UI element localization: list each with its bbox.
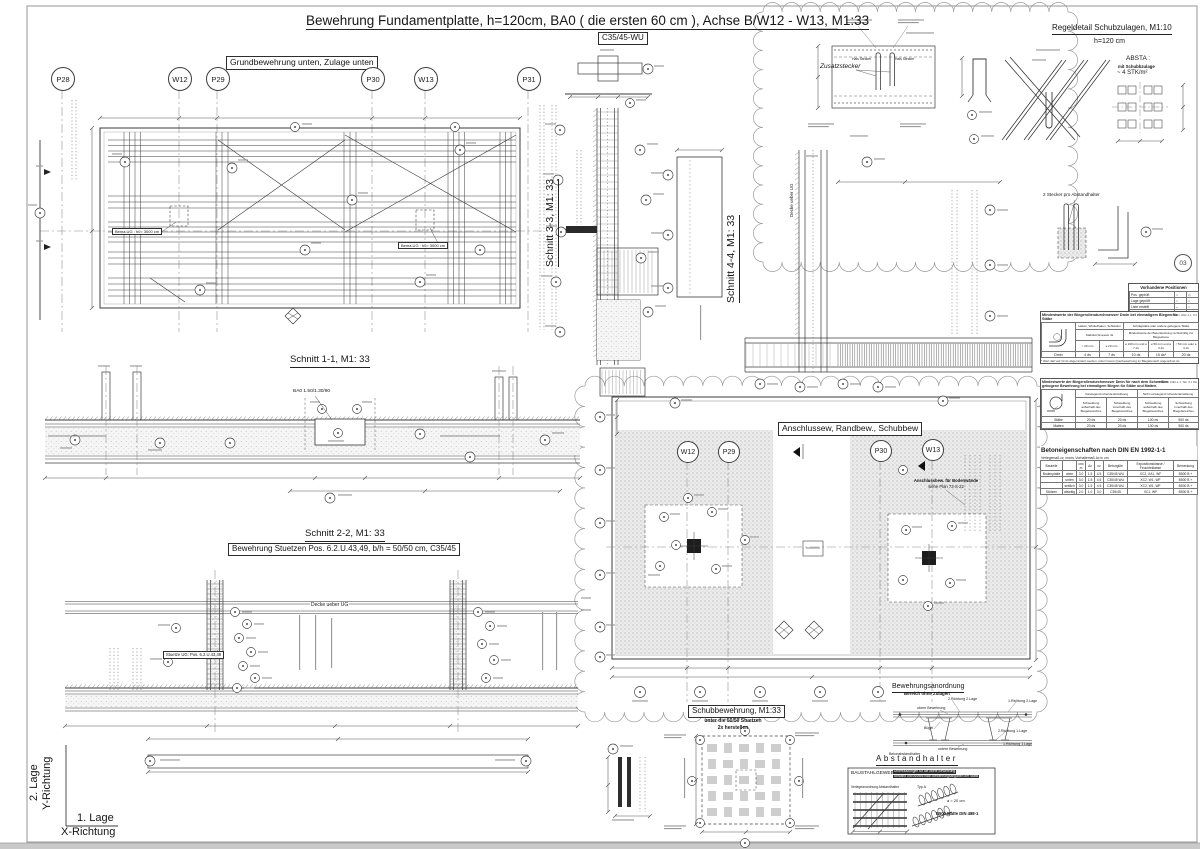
absta-title: ABSTA : [1126, 55, 1150, 62]
schnitt11-title: Schnitt 1-1, M1: 33 [290, 355, 370, 368]
regeldetail-subtitle: h=120 cm [1094, 38, 1125, 46]
grid-bubble-p29: P29 [206, 67, 230, 91]
grid-bubble-w13-2: W13 [922, 439, 944, 461]
absta-line3: ~ 4 STK/m² [1117, 70, 1148, 77]
table-betoneigenschaften: Betoneigenschaften nach DIN EN 1992-1-1 … [1040, 446, 1197, 495]
axis-lage1: 1. Lage [77, 812, 114, 824]
table-row: Matten20 ds20 ds100 ds500 ds [1042, 423, 1199, 429]
schnitt22-subtitle: Bewehrung Stuetzen Pos. 6.2.U.43,49, b/h… [228, 543, 460, 556]
anordnung-subtitle: Bereich ohne Zulagen [904, 692, 950, 697]
dmin2-norm: DIN EN 1992-1-1, Tab. 8.1 DE [1159, 380, 1197, 384]
grid-bubble-p30: P30 [361, 67, 385, 91]
baustahl-mass-note: a = 20 cm [947, 799, 965, 803]
zone-mark: 03 [1174, 254, 1192, 272]
schnitt44-title: Schnitt 4-4, M1: 33 [726, 215, 740, 303]
ba0-note: BA0 1.50/1.30/90 [293, 389, 330, 394]
table-dmin1: DIN EN 1992-1-1, 8.3 Mindestwerte der Bi… [1040, 311, 1199, 364]
hals-stecker-label-2: Hals Stecker [895, 58, 914, 62]
anschluss-header: Anschlussew, Randbew., Schubbew [778, 422, 922, 436]
baustahl-note2: Abstand und Anzahl nach Bewehrungsangabe… [893, 775, 979, 779]
schub-sub2: 2x herstellen [695, 726, 771, 732]
drawing-linework [0, 0, 1200, 849]
dmin2-head-right: Nicht vorwiegend ruhende Einwirkung [1138, 390, 1199, 398]
grid-bubble-w13: W13 [414, 67, 438, 91]
dmin1-norm: DIN EN 1992-1-1, 8.3 [1170, 313, 1197, 317]
baustahl-title: BAUSTAHLGEWEBE [851, 771, 897, 776]
dmin2-head-left: Vorwiegend ruhende Einwirkung [1076, 390, 1138, 398]
plan-unten-header: Grundbewehrung unten, Zulage unten [226, 56, 378, 70]
dmin1-head-left: Haken, Winkelhaken, Schlaufen [1076, 323, 1124, 330]
decke-ueber-ug-label-2: Decke ueber UG [789, 183, 794, 217]
schnitt33-title: Schnitt 3-3, M1: 33 [545, 179, 559, 267]
baustahl-verlege-note: Verlegeanordnung Abstandhalter [851, 786, 899, 790]
abstandhalter-title: Abstandhalter [876, 755, 958, 766]
dmin2-icon-cell [1042, 390, 1076, 417]
anordnung-label-5: untere Bewehrung [938, 747, 967, 751]
baustahl-din-note: B500 Matte DIN 488-1 [936, 812, 978, 817]
anordnung-label-3: Bügel [924, 726, 933, 730]
dmin1-sub-right: Mindestwerte der Betondeckung rechtwinkl… [1124, 329, 1199, 340]
table-row: Haken, Winkelhaken, Schlaufen Schrägstäb… [1042, 323, 1199, 330]
hals-stecker-label-1: Hals Stecker [852, 58, 871, 62]
schub-title: Schubbewehrung, M1:33 [688, 705, 785, 718]
zusatzstecker-label: Zusatzstecker [820, 63, 860, 70]
schnitt22-title: Schnitt 2-2, M1: 33 [305, 529, 385, 542]
table-header-row: BauteilecnomΔccvBetongüteExpositionsklas… [1041, 461, 1198, 471]
wand-note-line2: siehe Plan 73-S-22 [910, 485, 982, 490]
regeldetail-title: Regeldetail Schubzulagen, M1:10 [1052, 24, 1172, 35]
anordnung-label-2: obere Bewehrung [917, 706, 945, 710]
pit-note-2: Bema.UG : h0= 3000 cm [398, 242, 448, 249]
beton-grid: BauteilecnomΔccvBetongüteExpositionsklas… [1040, 460, 1198, 495]
bend-diagram-icon [1044, 324, 1074, 350]
dmin1-sub-left: Stabdurchmesser ds [1076, 329, 1124, 340]
weld-bend-diagram-icon [1044, 391, 1074, 415]
dmin1-head-right: Schrägstäbe oder andere gebogene Stäbe [1124, 323, 1199, 330]
grid-bubble-w12: W12 [168, 67, 192, 91]
grid-bubble-w12-2: W12 [677, 441, 699, 463]
decke-ueber-ug-label: Decke ueber UG [310, 603, 349, 609]
schub-sub1: unter die 50/50 Stuetzen [695, 719, 771, 725]
anordnung-label-4: 2.Richtung 1.Lage [998, 729, 1027, 733]
grid-bubble-p29-2: P29 [718, 441, 740, 463]
table-dmin2: DIN EN 1992-1-1, Tab. 8.1 DE Mindestwert… [1040, 378, 1199, 430]
dmin1-title: Mindestwerte der Biegerollendurchmesser … [1041, 312, 1183, 322]
drawing-sheet: Bewehrung Fundamentplatte, h=120cm, BA0 … [0, 0, 1200, 849]
wand-note-line1: Anschlussbew. für Bodenwände [910, 479, 982, 484]
pit-note-1: Bema.UG : h0= 3000 cm [112, 228, 162, 235]
stecker-note: 2 Stecker pro Abstandhalter [1043, 192, 1100, 197]
grid-bubble-p31: P31 [517, 67, 541, 91]
beton-title: Betoneigenschaften nach DIN EN 1992-1-1 [1040, 446, 1197, 455]
positionen-title: Vorhandene Positionen [1129, 284, 1198, 291]
table-row: Dmin4 ds7 ds10 ds15 ds*20 ds [1042, 352, 1199, 358]
table-row: Vorwiegend ruhende Einwirkung Nicht vorw… [1042, 390, 1199, 398]
anordnung-label-1: 1.Richtung 2.Lage [1008, 699, 1037, 703]
page-title: Bewehrung Fundamentplatte, h=120cm, BA0 … [306, 13, 869, 30]
stuetze-ug-label: Stuetze UG: Pos. 6.2.U.43,49 [163, 651, 224, 659]
dmin1-footnote: * Wert darf auf 10 ds abgemindert werden… [1041, 358, 1198, 363]
dmin1-icon-cell [1042, 323, 1076, 352]
axis-lage2: 2. Lage [28, 764, 40, 801]
axis-y-richtung: Y-Richtung [41, 757, 53, 810]
anordnung-label-0: 2.Richtung 2.Lage [948, 697, 977, 701]
dmin2-grid: Vorwiegend ruhende Einwirkung Nicht vorw… [1041, 389, 1199, 429]
table-row: Stützenallseitig2.01.03.0C35/45XC1, WFB5… [1041, 489, 1198, 495]
dmin1-grid: Haken, Winkelhaken, Schlaufen Schrägstäb… [1041, 322, 1199, 358]
grid-bubble-p28: P28 [51, 67, 75, 91]
grid-bubble-p30-2: P30 [870, 440, 892, 462]
baustahl-typ-note: Typ A [917, 785, 926, 789]
anordnung-label-6: 1.Richtung 1.Lage [1003, 742, 1032, 746]
axis-x-richtung: X-Richtung [61, 826, 115, 838]
concrete-class-label: C35/45-WU [598, 32, 648, 45]
